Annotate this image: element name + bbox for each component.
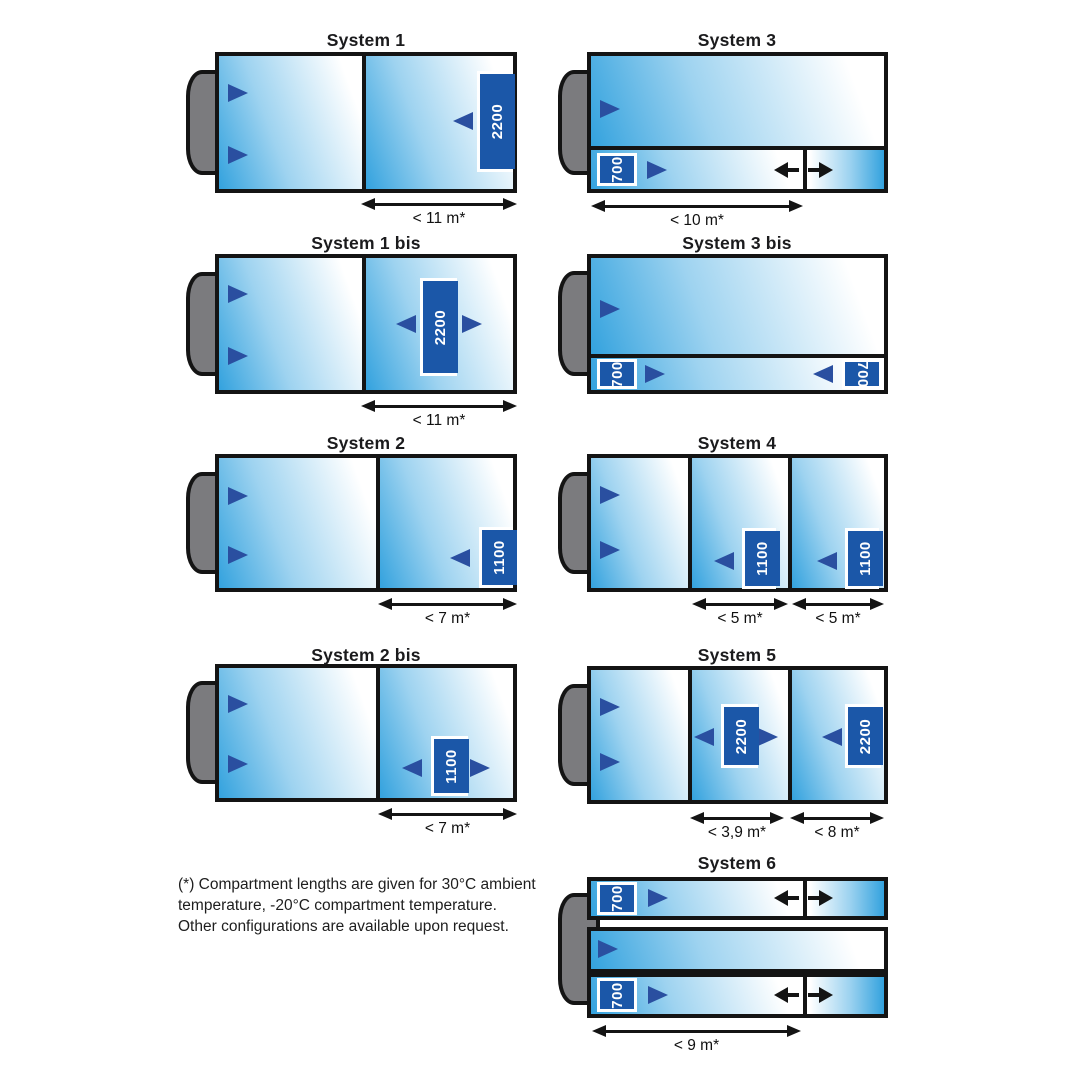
- capacity-tag-box: 1100: [745, 531, 780, 586]
- arrow-head-left: [792, 598, 806, 610]
- dimension-label: < 7 m*: [425, 610, 470, 628]
- capacity-tag-box: 700: [600, 156, 634, 183]
- dimension-label: < 10 m*: [670, 212, 724, 230]
- airflow-fan-icon: [228, 755, 248, 773]
- arrow-tail: [788, 168, 799, 172]
- airflow-fan-icon: [450, 549, 470, 567]
- arrow-head-left: [361, 198, 375, 210]
- capacity-tag-box: 2200: [423, 281, 458, 373]
- system-title: System 1 bis: [311, 233, 420, 254]
- refrigeration-systems-diagram: (*) Compartment lengths are given for 30…: [0, 0, 1068, 1068]
- arrow-head-right: [503, 198, 517, 210]
- arrow-head-right: [870, 812, 884, 824]
- arrow-head-left: [692, 598, 706, 610]
- footnote-line: Other configurations are available upon …: [178, 916, 546, 937]
- system-title: System 3: [698, 30, 776, 51]
- compartment-divider: [376, 668, 380, 798]
- dimension-label: < 7 m*: [425, 820, 470, 838]
- arrow-line: [606, 1030, 787, 1033]
- capacity-tag: 1100: [431, 736, 468, 796]
- capacity-tag-box: 700: [600, 362, 634, 386]
- airflow-fan-icon: [470, 759, 490, 777]
- airflow-fan-icon: [598, 940, 618, 958]
- dimension-label: < 5 m*: [815, 610, 860, 628]
- capacity-tag-box: 1100: [482, 530, 517, 585]
- arrow-tail: [788, 993, 799, 997]
- capacity-tag-box: 700: [845, 362, 879, 386]
- airflow-fan-icon: [228, 285, 248, 303]
- airflow-fan-icon: [647, 161, 667, 179]
- capacity-tag-label: 700: [854, 361, 871, 388]
- arrow-line: [375, 405, 503, 408]
- capacity-tag: 2200: [721, 704, 758, 768]
- arrow-head-right: [503, 598, 517, 610]
- compartment-divider: [362, 56, 366, 189]
- compartment-divider: [362, 258, 366, 390]
- compartment-divider: [803, 150, 807, 189]
- airflow-arrow-icon: [774, 162, 799, 178]
- airflow-fan-icon: [813, 365, 833, 383]
- capacity-tag-label: 700: [609, 361, 626, 388]
- dimension-arrow: [591, 199, 803, 213]
- system-title: System 2 bis: [311, 645, 420, 666]
- capacity-tag-label: 2200: [857, 718, 874, 753]
- arrow-head-left: [592, 1025, 606, 1037]
- arrow-head: [774, 987, 788, 1003]
- system-title: System 6: [698, 853, 776, 874]
- airflow-fan-icon: [228, 695, 248, 713]
- capacity-tag-label: 1100: [443, 749, 460, 784]
- compartment-divider: [688, 458, 692, 588]
- airflow-fan-icon: [600, 300, 620, 318]
- capacity-tag-box: 1100: [434, 739, 469, 793]
- capacity-tag-box: 700: [600, 885, 634, 912]
- airflow-fan-icon: [600, 100, 620, 118]
- capacity-tag-box: 2200: [480, 74, 515, 169]
- airflow-arrow-icon: [808, 890, 833, 906]
- airflow-fan-icon: [453, 112, 473, 130]
- dimension-label: < 8 m*: [814, 824, 859, 842]
- airflow-fan-icon: [694, 728, 714, 746]
- compartment-divider: [591, 146, 884, 150]
- airflow-fan-icon: [600, 541, 620, 559]
- capacity-tag: 700: [597, 882, 637, 915]
- dimension-arrow: [361, 197, 517, 211]
- airflow-fan-icon: [600, 486, 620, 504]
- trailer-body: [587, 454, 888, 592]
- capacity-tag: 700: [597, 153, 637, 186]
- arrow-tail: [808, 993, 819, 997]
- arrow-head: [819, 162, 833, 178]
- arrow-head: [774, 162, 788, 178]
- airflow-fan-icon: [817, 552, 837, 570]
- dimension-arrow: [378, 807, 517, 821]
- compartment-divider: [788, 458, 792, 588]
- arrow-head-right: [770, 812, 784, 824]
- dimension-arrow: [361, 399, 517, 413]
- arrow-head-left: [378, 808, 392, 820]
- capacity-tag: 700: [597, 359, 637, 389]
- compartment-divider: [591, 354, 884, 358]
- airflow-fan-icon: [758, 728, 778, 746]
- arrow-head-left: [378, 598, 392, 610]
- arrow-tail: [788, 896, 799, 900]
- airflow-fan-icon: [402, 759, 422, 777]
- dimension-label: < 11 m*: [413, 412, 466, 430]
- arrow-head-right: [503, 808, 517, 820]
- dimension-arrow: [378, 597, 517, 611]
- airflow-fan-icon: [645, 365, 665, 383]
- arrow-head-right: [774, 598, 788, 610]
- airflow-fan-icon: [600, 753, 620, 771]
- system-title: System 1: [327, 30, 405, 51]
- arrow-head-right: [787, 1025, 801, 1037]
- arrow-head: [819, 987, 833, 1003]
- trailer-body: [215, 664, 517, 802]
- arrow-line: [706, 603, 774, 606]
- capacity-tag-label: 1100: [857, 541, 874, 576]
- arrow-tail: [808, 168, 819, 172]
- airflow-fan-icon: [462, 315, 482, 333]
- capacity-tag: 700: [597, 978, 637, 1012]
- airflow-fan-icon: [228, 347, 248, 365]
- arrow-line: [392, 603, 503, 606]
- dimension-arrow: [790, 811, 884, 825]
- arrow-line: [804, 817, 870, 820]
- capacity-tag: 700: [842, 359, 882, 389]
- arrow-head-left: [690, 812, 704, 824]
- capacity-tag: 2200: [420, 278, 457, 376]
- dimension-label: < 3,9 m*: [708, 824, 766, 842]
- capacity-tag-label: 700: [609, 156, 626, 183]
- dimension-arrow: [592, 1024, 801, 1038]
- capacity-tag-label: 1100: [754, 541, 771, 576]
- airflow-fan-icon: [822, 728, 842, 746]
- dimension-label: < 9 m*: [674, 1037, 719, 1055]
- airflow-fan-icon: [396, 315, 416, 333]
- capacity-tag-box: 2200: [848, 707, 883, 765]
- capacity-tag-label: 700: [609, 885, 626, 912]
- arrow-head-left: [790, 812, 804, 824]
- airflow-arrow-icon: [774, 890, 799, 906]
- airflow-fan-icon: [714, 552, 734, 570]
- airflow-fan-icon: [228, 84, 248, 102]
- footnote-line: temperature, -20°C compartment temperatu…: [178, 895, 546, 916]
- capacity-tag-box: 1100: [848, 531, 883, 586]
- trailer-body: [215, 454, 517, 592]
- arrow-line: [704, 817, 770, 820]
- capacity-tag: 1100: [845, 528, 879, 589]
- footnote: (*) Compartment lengths are given for 30…: [178, 874, 546, 937]
- compartment-divider: [688, 670, 692, 800]
- footnote-line: (*) Compartment lengths are given for 30…: [178, 874, 546, 895]
- arrow-head: [774, 890, 788, 906]
- trailer-body: [587, 927, 888, 973]
- capacity-tag: 2200: [845, 704, 881, 768]
- airflow-arrow-icon: [774, 987, 799, 1003]
- capacity-tag-label: 2200: [489, 104, 506, 139]
- system-title: System 2: [327, 433, 405, 454]
- arrow-head-left: [361, 400, 375, 412]
- system-title: System 4: [698, 433, 776, 454]
- airflow-arrow-icon: [808, 162, 833, 178]
- airflow-fan-icon: [600, 698, 620, 716]
- capacity-tag-box: 2200: [724, 707, 759, 765]
- airflow-fan-icon: [228, 546, 248, 564]
- airflow-arrow-icon: [808, 987, 833, 1003]
- capacity-tag-box: 700: [600, 981, 634, 1009]
- airflow-fan-icon: [228, 487, 248, 505]
- system-title: System 5: [698, 645, 776, 666]
- dimension-arrow: [792, 597, 884, 611]
- arrow-head: [819, 890, 833, 906]
- arrow-head-right: [503, 400, 517, 412]
- airflow-fan-icon: [648, 889, 668, 907]
- airflow-fan-icon: [648, 986, 668, 1004]
- capacity-tag-label: 2200: [432, 309, 449, 344]
- dimension-arrow: [692, 597, 788, 611]
- capacity-tag: 1100: [742, 528, 776, 589]
- arrow-line: [375, 203, 503, 206]
- dimension-label: < 11 m*: [413, 210, 466, 228]
- dimension-label: < 5 m*: [717, 610, 762, 628]
- compartment-divider: [803, 881, 807, 916]
- arrow-line: [605, 205, 789, 208]
- capacity-tag-label: 700: [609, 982, 626, 1009]
- capacity-tag: 1100: [479, 527, 513, 588]
- arrow-line: [392, 813, 503, 816]
- compartment-divider: [376, 458, 380, 588]
- arrow-tail: [808, 896, 819, 900]
- compartment-divider: [788, 670, 792, 800]
- compartment-divider: [803, 977, 807, 1014]
- capacity-tag-label: 1100: [491, 540, 508, 575]
- arrow-head-right: [789, 200, 803, 212]
- system-title: System 3 bis: [682, 233, 791, 254]
- airflow-fan-icon: [228, 146, 248, 164]
- arrow-head-left: [591, 200, 605, 212]
- arrow-line: [806, 603, 870, 606]
- arrow-head-right: [870, 598, 884, 610]
- capacity-tag-label: 2200: [733, 718, 750, 753]
- capacity-tag: 2200: [477, 71, 513, 172]
- dimension-arrow: [690, 811, 784, 825]
